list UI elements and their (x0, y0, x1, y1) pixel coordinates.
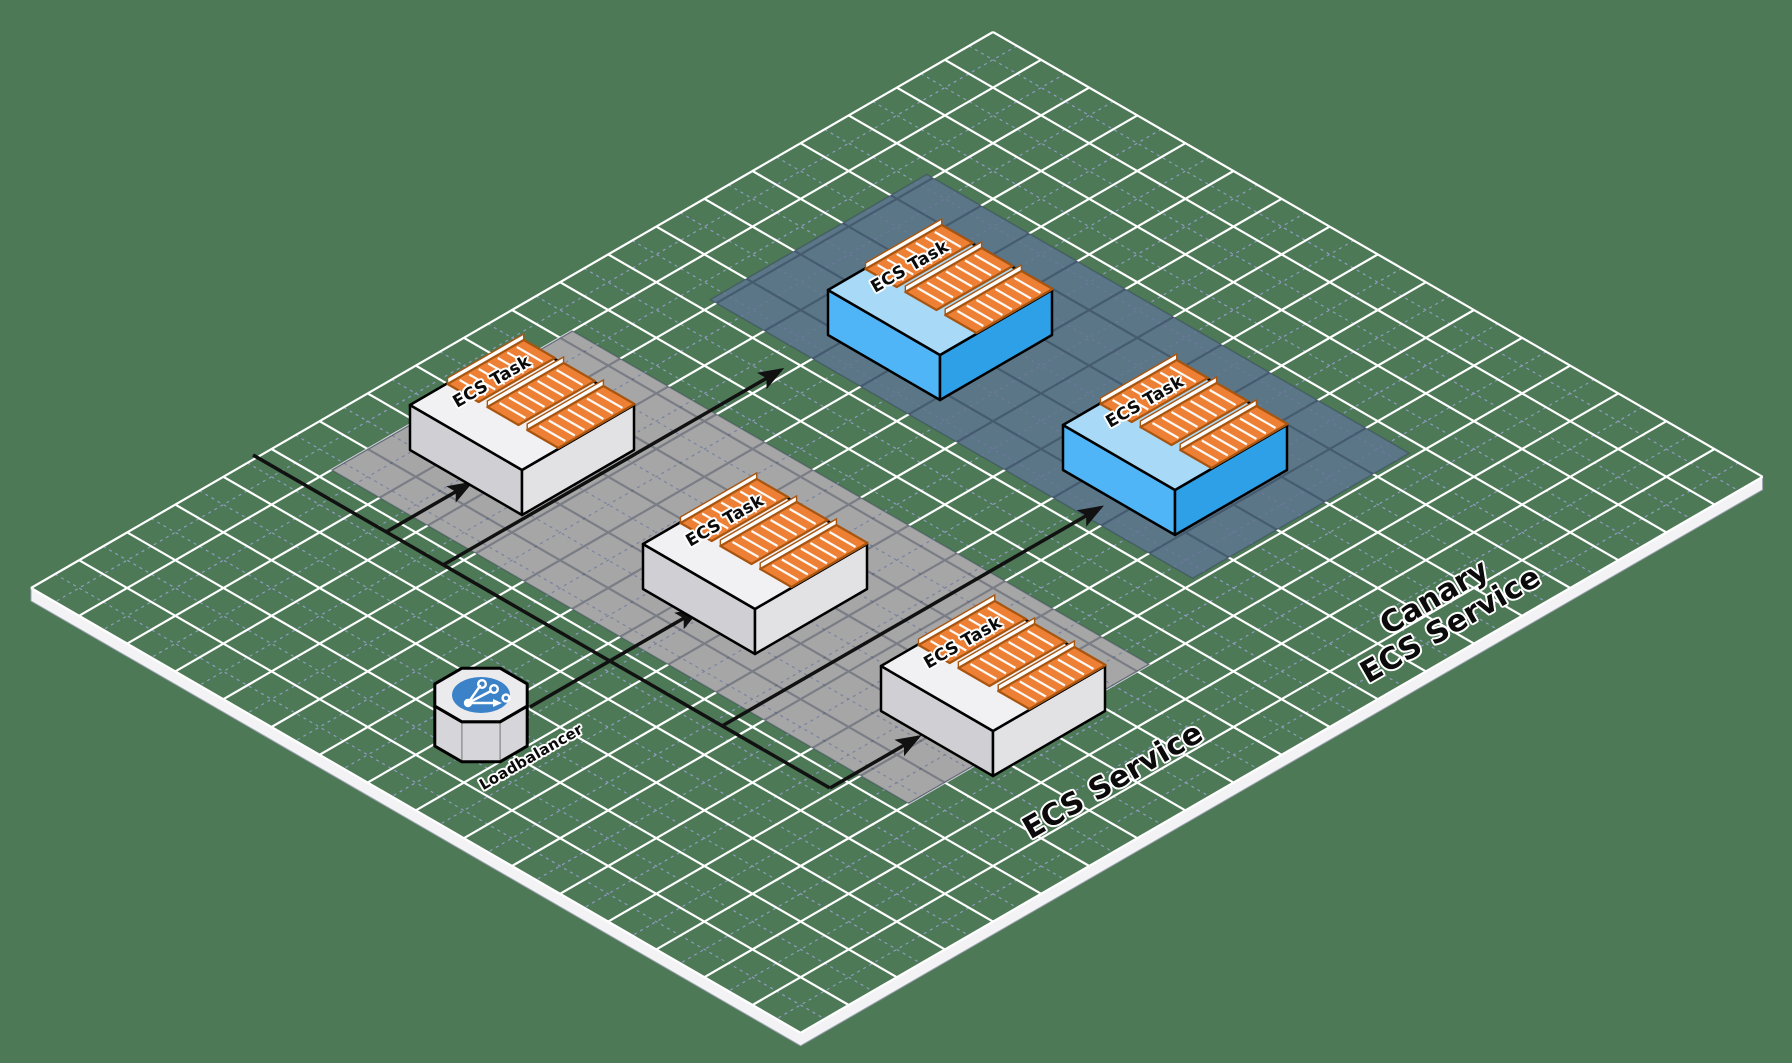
diagram-canvas (0, 0, 1792, 1063)
isometric-diagram: ECS Task ECS Task ECS Task ECS Task ECS … (0, 0, 1792, 1063)
loadbalancer-node (435, 668, 527, 762)
